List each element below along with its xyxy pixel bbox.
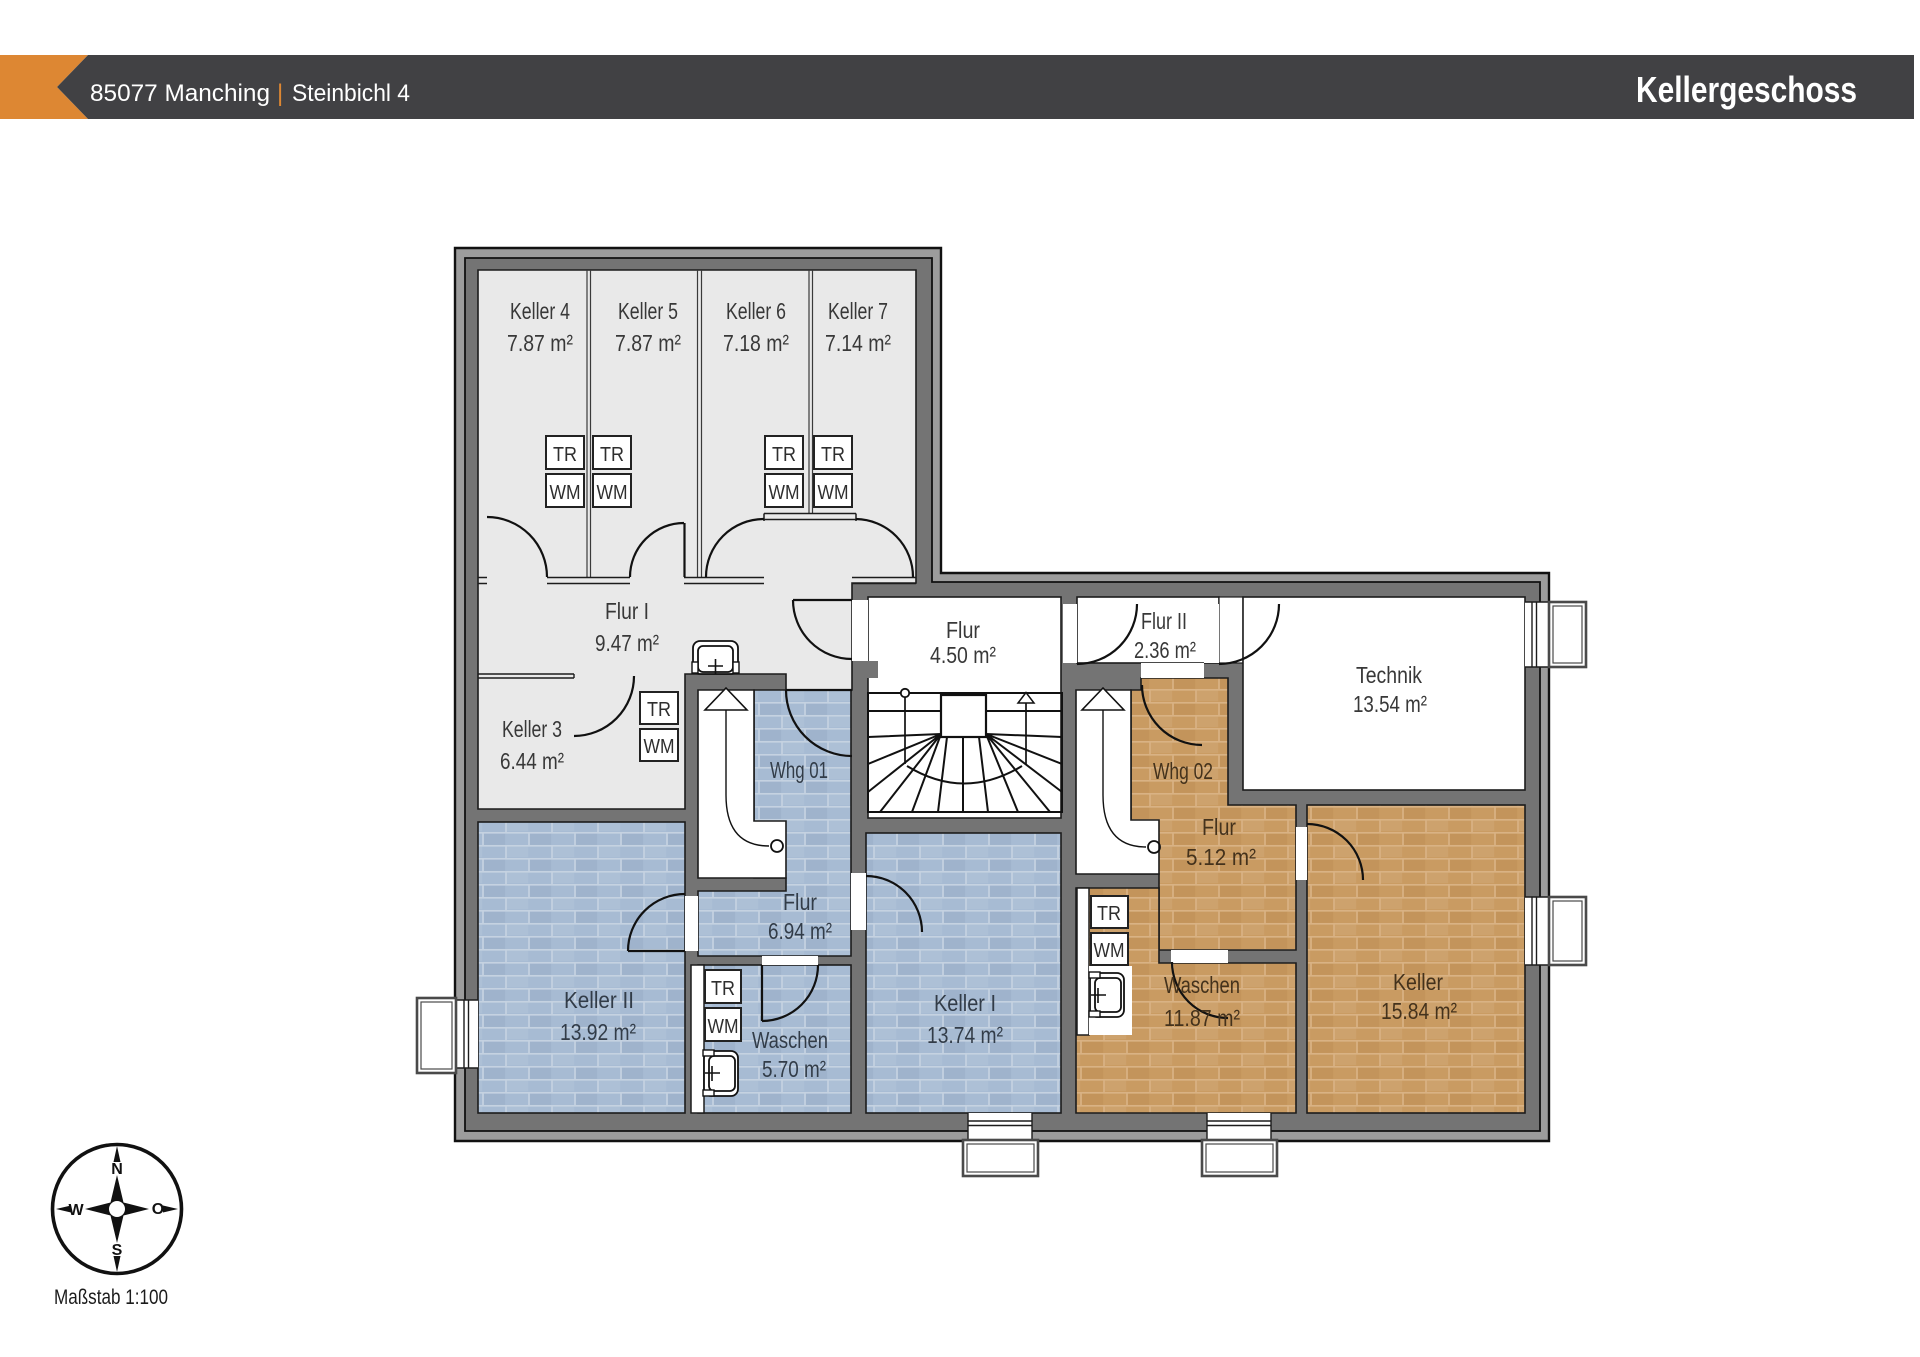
svg-text:Waschen: Waschen [1164, 972, 1240, 998]
svg-text:WM: WM [597, 482, 628, 504]
svg-text:TR: TR [711, 978, 735, 1000]
svg-text:Steinbichl 4: Steinbichl 4 [292, 80, 410, 107]
svg-text:13.92 m²: 13.92 m² [560, 1019, 636, 1045]
svg-text:Keller II: Keller II [564, 987, 634, 1013]
svg-text:TR: TR [772, 444, 796, 466]
svg-text:TR: TR [553, 444, 577, 466]
svg-text:WM: WM [1094, 940, 1125, 962]
svg-text:Kellergeschoss: Kellergeschoss [1636, 69, 1857, 110]
svg-text:TR: TR [1097, 903, 1121, 925]
svg-text:Keller 3: Keller 3 [502, 716, 562, 742]
svg-text:7.87 m²: 7.87 m² [615, 330, 681, 356]
svg-text:Flur I: Flur I [605, 598, 649, 624]
svg-text:Keller 6: Keller 6 [726, 298, 786, 324]
svg-text:7.18 m²: 7.18 m² [723, 330, 789, 356]
svg-text:11.87 m²: 11.87 m² [1164, 1005, 1240, 1031]
svg-text:9.47 m²: 9.47 m² [595, 630, 659, 656]
svg-text:Keller: Keller [1393, 969, 1443, 995]
svg-text:Whg 01: Whg 01 [770, 757, 828, 783]
svg-text:WM: WM [769, 482, 800, 504]
svg-text:Flur: Flur [783, 889, 817, 915]
svg-text:Flur: Flur [946, 617, 980, 643]
svg-text:85077 Manching: 85077 Manching [90, 80, 270, 107]
svg-text:Keller 4: Keller 4 [510, 298, 570, 324]
svg-text:6.44 m²: 6.44 m² [500, 748, 564, 774]
svg-text:Whg 02: Whg 02 [1153, 758, 1213, 784]
svg-text:7.87 m²: 7.87 m² [507, 330, 573, 356]
svg-text:5.70 m²: 5.70 m² [762, 1056, 826, 1082]
svg-text:O: O [152, 1201, 164, 1218]
svg-text:Keller 5: Keller 5 [618, 298, 678, 324]
svg-text:Flur: Flur [1202, 814, 1236, 840]
svg-text:WM: WM [550, 482, 581, 504]
svg-text:TR: TR [600, 444, 624, 466]
svg-text:Maßstab 1:100: Maßstab 1:100 [54, 1286, 168, 1309]
svg-text:13.54 m²: 13.54 m² [1353, 691, 1427, 717]
svg-text:7.14 m²: 7.14 m² [825, 330, 891, 356]
svg-text:5.12 m²: 5.12 m² [1186, 844, 1256, 870]
svg-text:4.50 m²: 4.50 m² [930, 642, 996, 668]
svg-text:13.74 m²: 13.74 m² [927, 1022, 1003, 1048]
svg-text:N: N [111, 1161, 123, 1178]
svg-text:WM: WM [644, 736, 675, 758]
svg-text:W: W [68, 1202, 84, 1219]
svg-text:Waschen: Waschen [752, 1027, 828, 1053]
svg-text:Technik: Technik [1356, 662, 1422, 688]
svg-text:Keller I: Keller I [934, 990, 996, 1016]
svg-text:WM: WM [818, 482, 849, 504]
svg-text:|: | [277, 80, 283, 107]
svg-text:6.94 m²: 6.94 m² [768, 918, 832, 944]
svg-text:15.84 m²: 15.84 m² [1381, 998, 1457, 1024]
svg-text:TR: TR [647, 699, 671, 721]
svg-text:WM: WM [708, 1016, 739, 1038]
svg-text:Flur II: Flur II [1141, 608, 1187, 634]
svg-text:Keller 7: Keller 7 [828, 298, 888, 324]
svg-text:S: S [112, 1242, 123, 1259]
svg-text:2.36 m²: 2.36 m² [1134, 637, 1196, 663]
svg-text:TR: TR [821, 444, 845, 466]
